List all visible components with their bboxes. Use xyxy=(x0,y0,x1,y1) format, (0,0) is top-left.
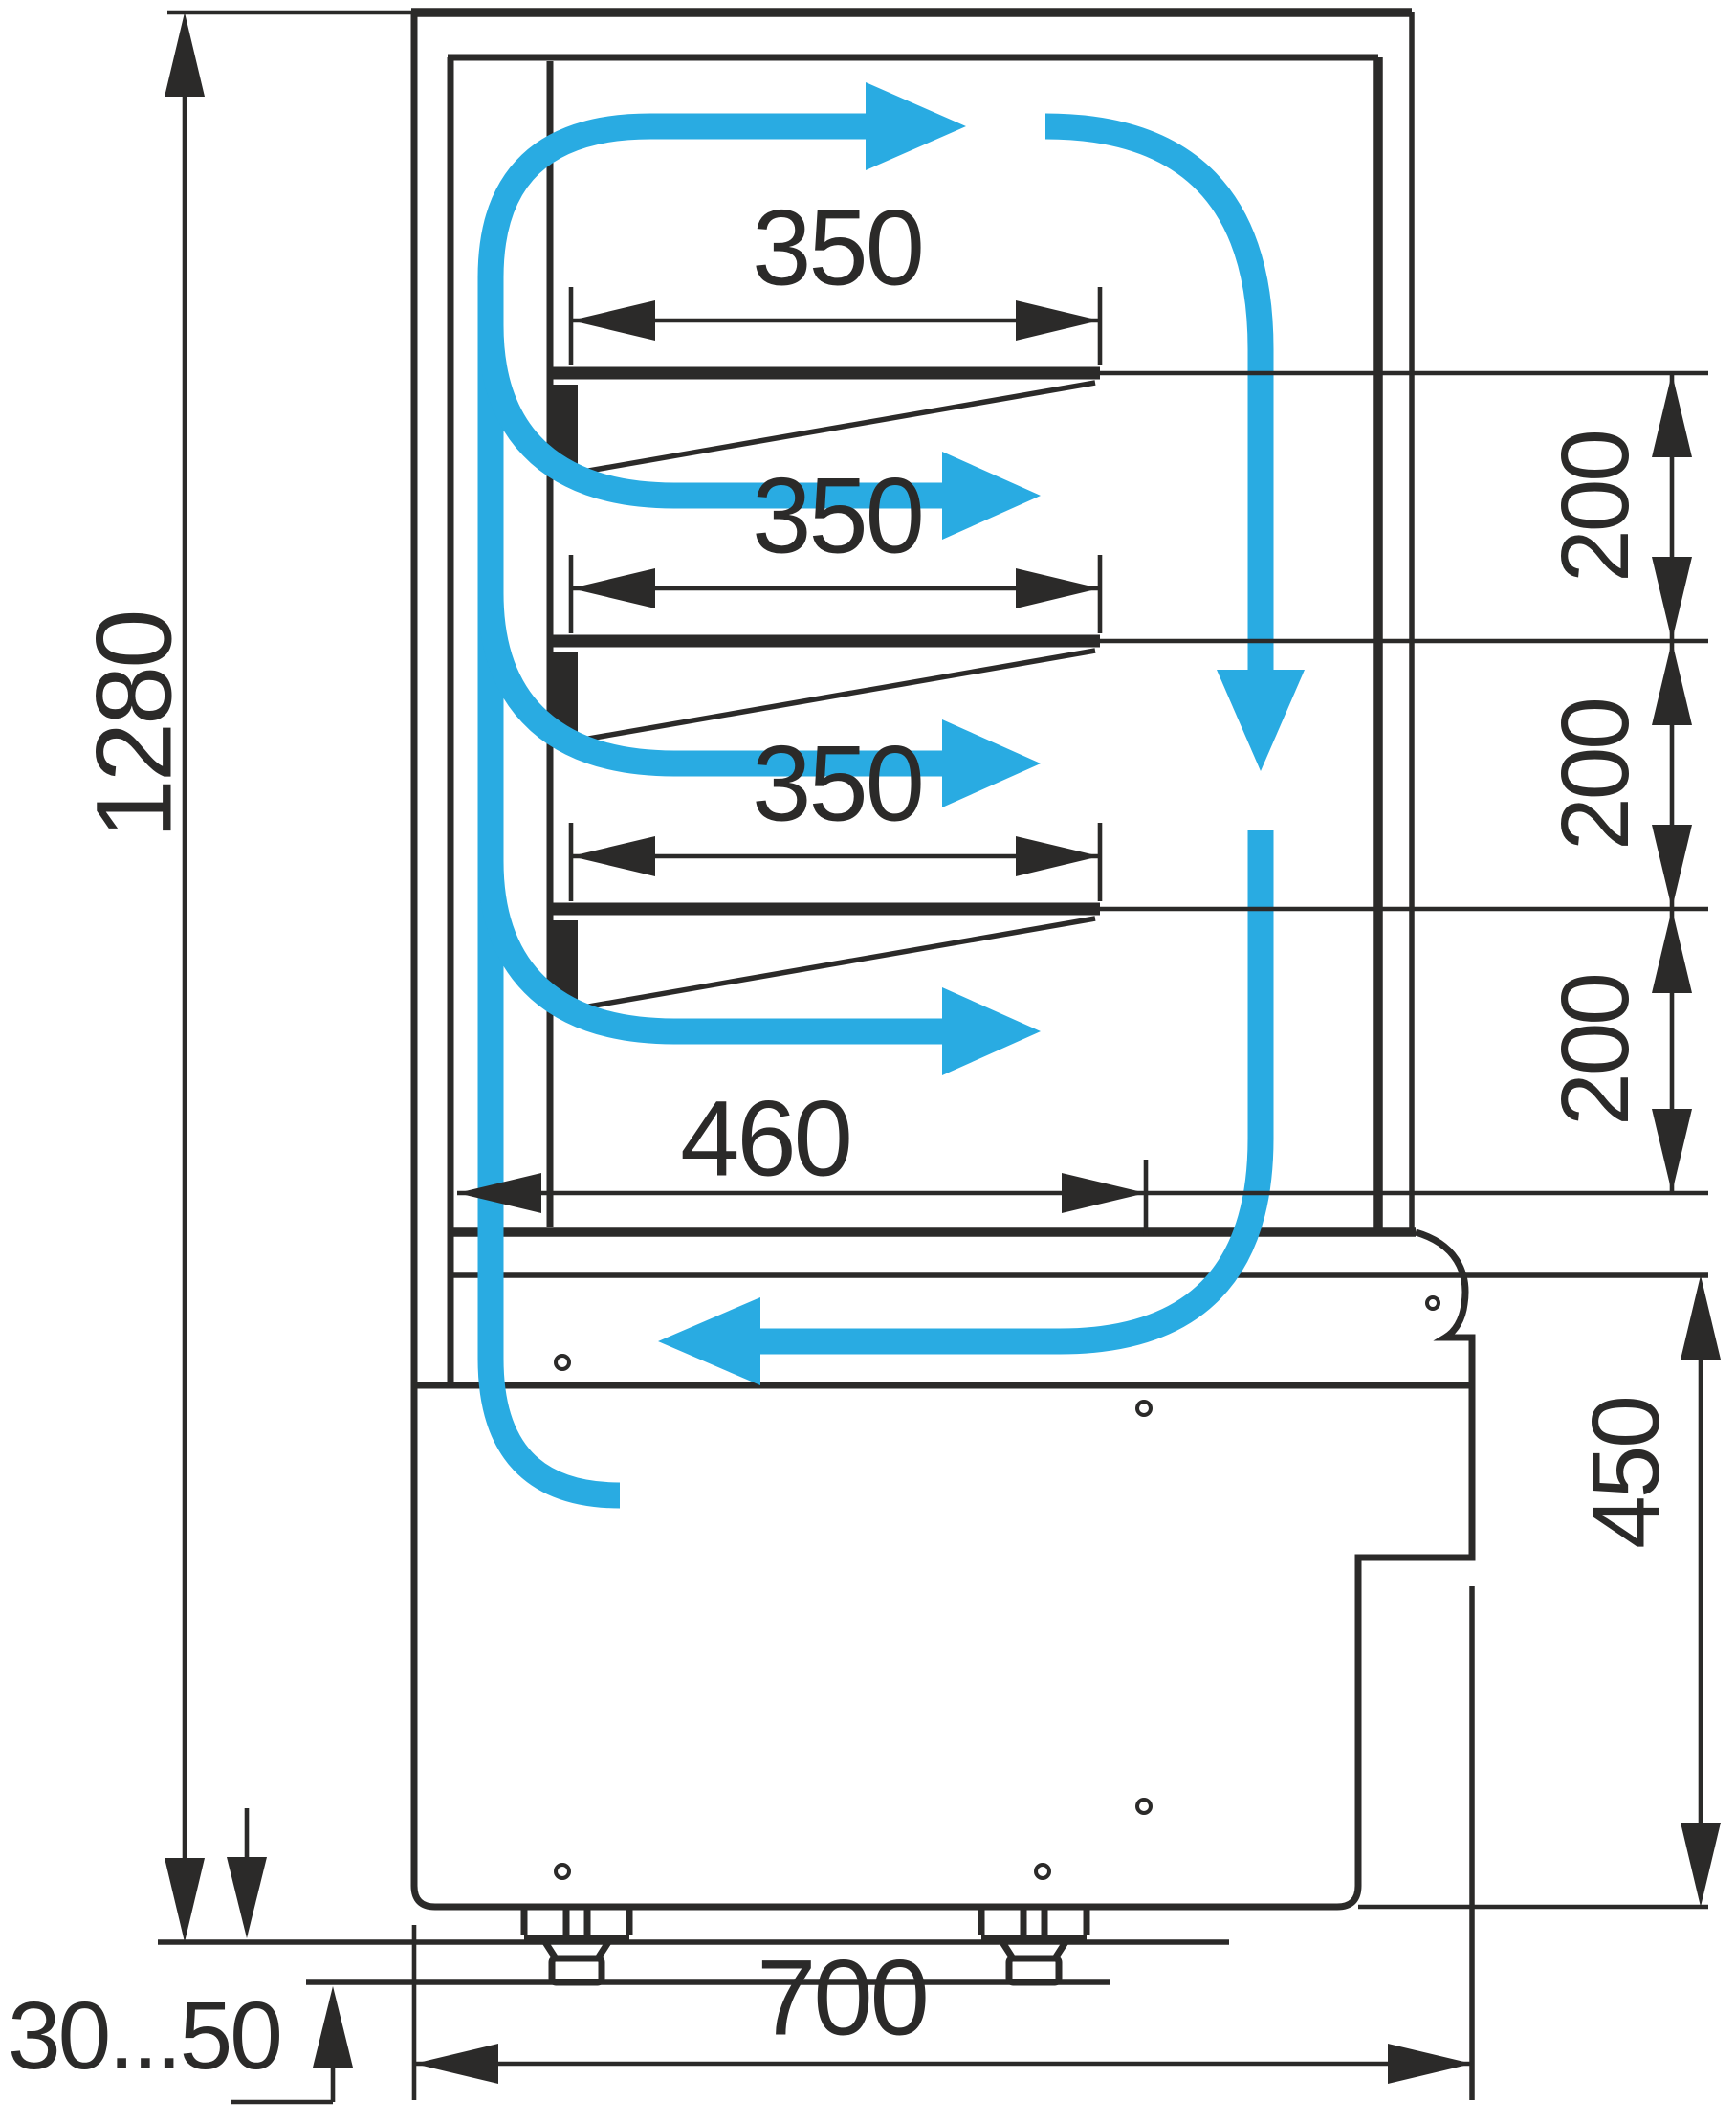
panel-hole-5 xyxy=(1137,1800,1151,1813)
feet xyxy=(158,1907,1229,1982)
dim-label-shelf2-depth: 350 xyxy=(752,456,922,576)
dim-label-shelf1-depth: 350 xyxy=(752,188,922,308)
panel-hole-3 xyxy=(1036,1865,1049,1878)
dim-label-spacing-1: 200 xyxy=(1542,431,1649,583)
dim-label-leg-adjust: 30...50 xyxy=(8,1982,280,2090)
airflow-arrowhead-top-icon xyxy=(866,82,966,170)
dim-shelf-spacing: 200 200 200 xyxy=(1100,373,1708,1193)
dim-label-total-height: 1280 xyxy=(75,611,194,838)
airflow-arrowhead-deck-icon xyxy=(942,987,1041,1075)
dim-overall-depth: 700 xyxy=(414,1925,1472,2100)
dim-deck-depth: 460 xyxy=(457,1079,1708,1237)
dim-total-height: 1280 xyxy=(75,12,415,1942)
dim-label-base-height: 450 xyxy=(1572,1398,1680,1549)
airflow-arrowhead-shelf3-icon xyxy=(942,719,1041,807)
dim-arrow-down-icon xyxy=(165,1858,205,1942)
bumper-hole xyxy=(1427,1297,1439,1309)
dim-label-spacing-2: 200 xyxy=(1542,699,1649,851)
dim-label-deck-depth: 460 xyxy=(680,1079,850,1199)
drawing-canvas: 1280 350 350 350 460 xyxy=(0,0,1736,2123)
dim-shelf1-depth: 350 xyxy=(571,188,1100,366)
dim-leg-adjust: 30...50 xyxy=(8,1808,353,2102)
panel-hole-1 xyxy=(556,1356,569,1369)
airflow-arrowhead-down-icon xyxy=(1217,670,1305,771)
airflow-arrowhead-shelf2-icon xyxy=(942,452,1041,540)
dim-arrow-up-icon xyxy=(165,12,205,97)
shelf-3-bracket xyxy=(578,918,1095,1008)
panel-hole-4 xyxy=(1137,1402,1151,1415)
panel-hole-2 xyxy=(556,1865,569,1878)
dim-label-overall-depth: 700 xyxy=(757,1938,927,2058)
dim-arrow-right-icon xyxy=(1016,300,1100,341)
dim-arrow-left-icon xyxy=(571,300,655,341)
airflow-arrowhead-return-icon xyxy=(658,1297,760,1385)
dim-base-height: 450 xyxy=(1358,1275,1721,1907)
dim-label-spacing-3: 200 xyxy=(1542,975,1649,1126)
dim-label-shelf3-depth: 350 xyxy=(752,724,922,844)
cross-section-drawing: 1280 350 350 350 460 xyxy=(0,0,1736,2123)
